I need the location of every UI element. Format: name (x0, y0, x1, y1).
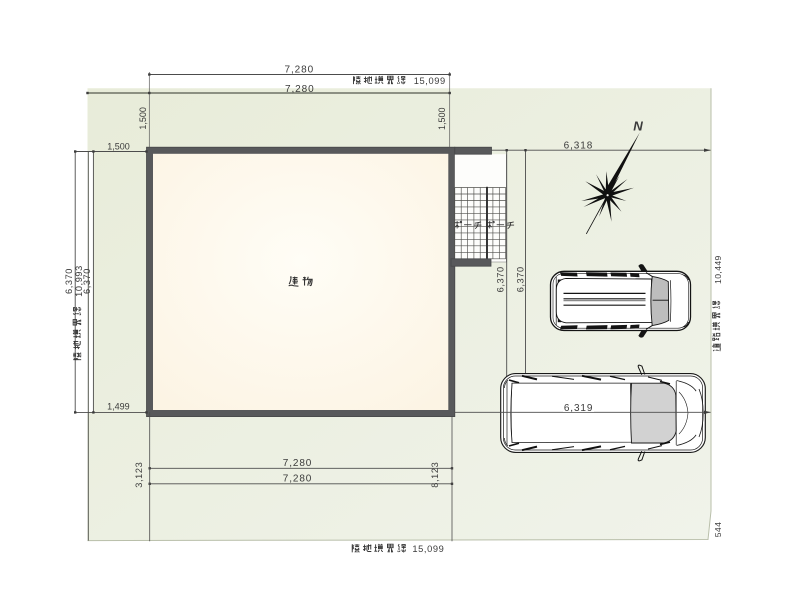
svg-text:6,318: 6,318 (564, 141, 594, 152)
svg-text:6,370: 6,370 (64, 268, 74, 294)
svg-text:1,500: 1,500 (437, 107, 447, 130)
svg-text:15,099: 15,099 (414, 76, 446, 86)
svg-text:6,370: 6,370 (496, 266, 506, 292)
svg-text:1,499: 1,499 (107, 401, 130, 411)
svg-text:7,280: 7,280 (283, 458, 313, 469)
svg-text:6,319: 6,319 (564, 403, 594, 414)
svg-text:7,280: 7,280 (285, 84, 315, 95)
svg-text:1,500: 1,500 (107, 142, 130, 152)
svg-text:N: N (633, 119, 643, 134)
svg-text:7,280: 7,280 (283, 474, 313, 485)
svg-text:15,099: 15,099 (412, 544, 444, 554)
svg-text:6,370: 6,370 (82, 268, 92, 294)
svg-text:8,123: 8,123 (430, 462, 440, 488)
svg-text:6,370: 6,370 (516, 266, 526, 292)
svg-text:3,123: 3,123 (134, 462, 144, 488)
svg-text:10,449: 10,449 (713, 255, 723, 284)
svg-text:1,500: 1,500 (138, 107, 148, 130)
svg-text:544: 544 (713, 522, 723, 538)
svg-text:7,280: 7,280 (285, 65, 315, 76)
